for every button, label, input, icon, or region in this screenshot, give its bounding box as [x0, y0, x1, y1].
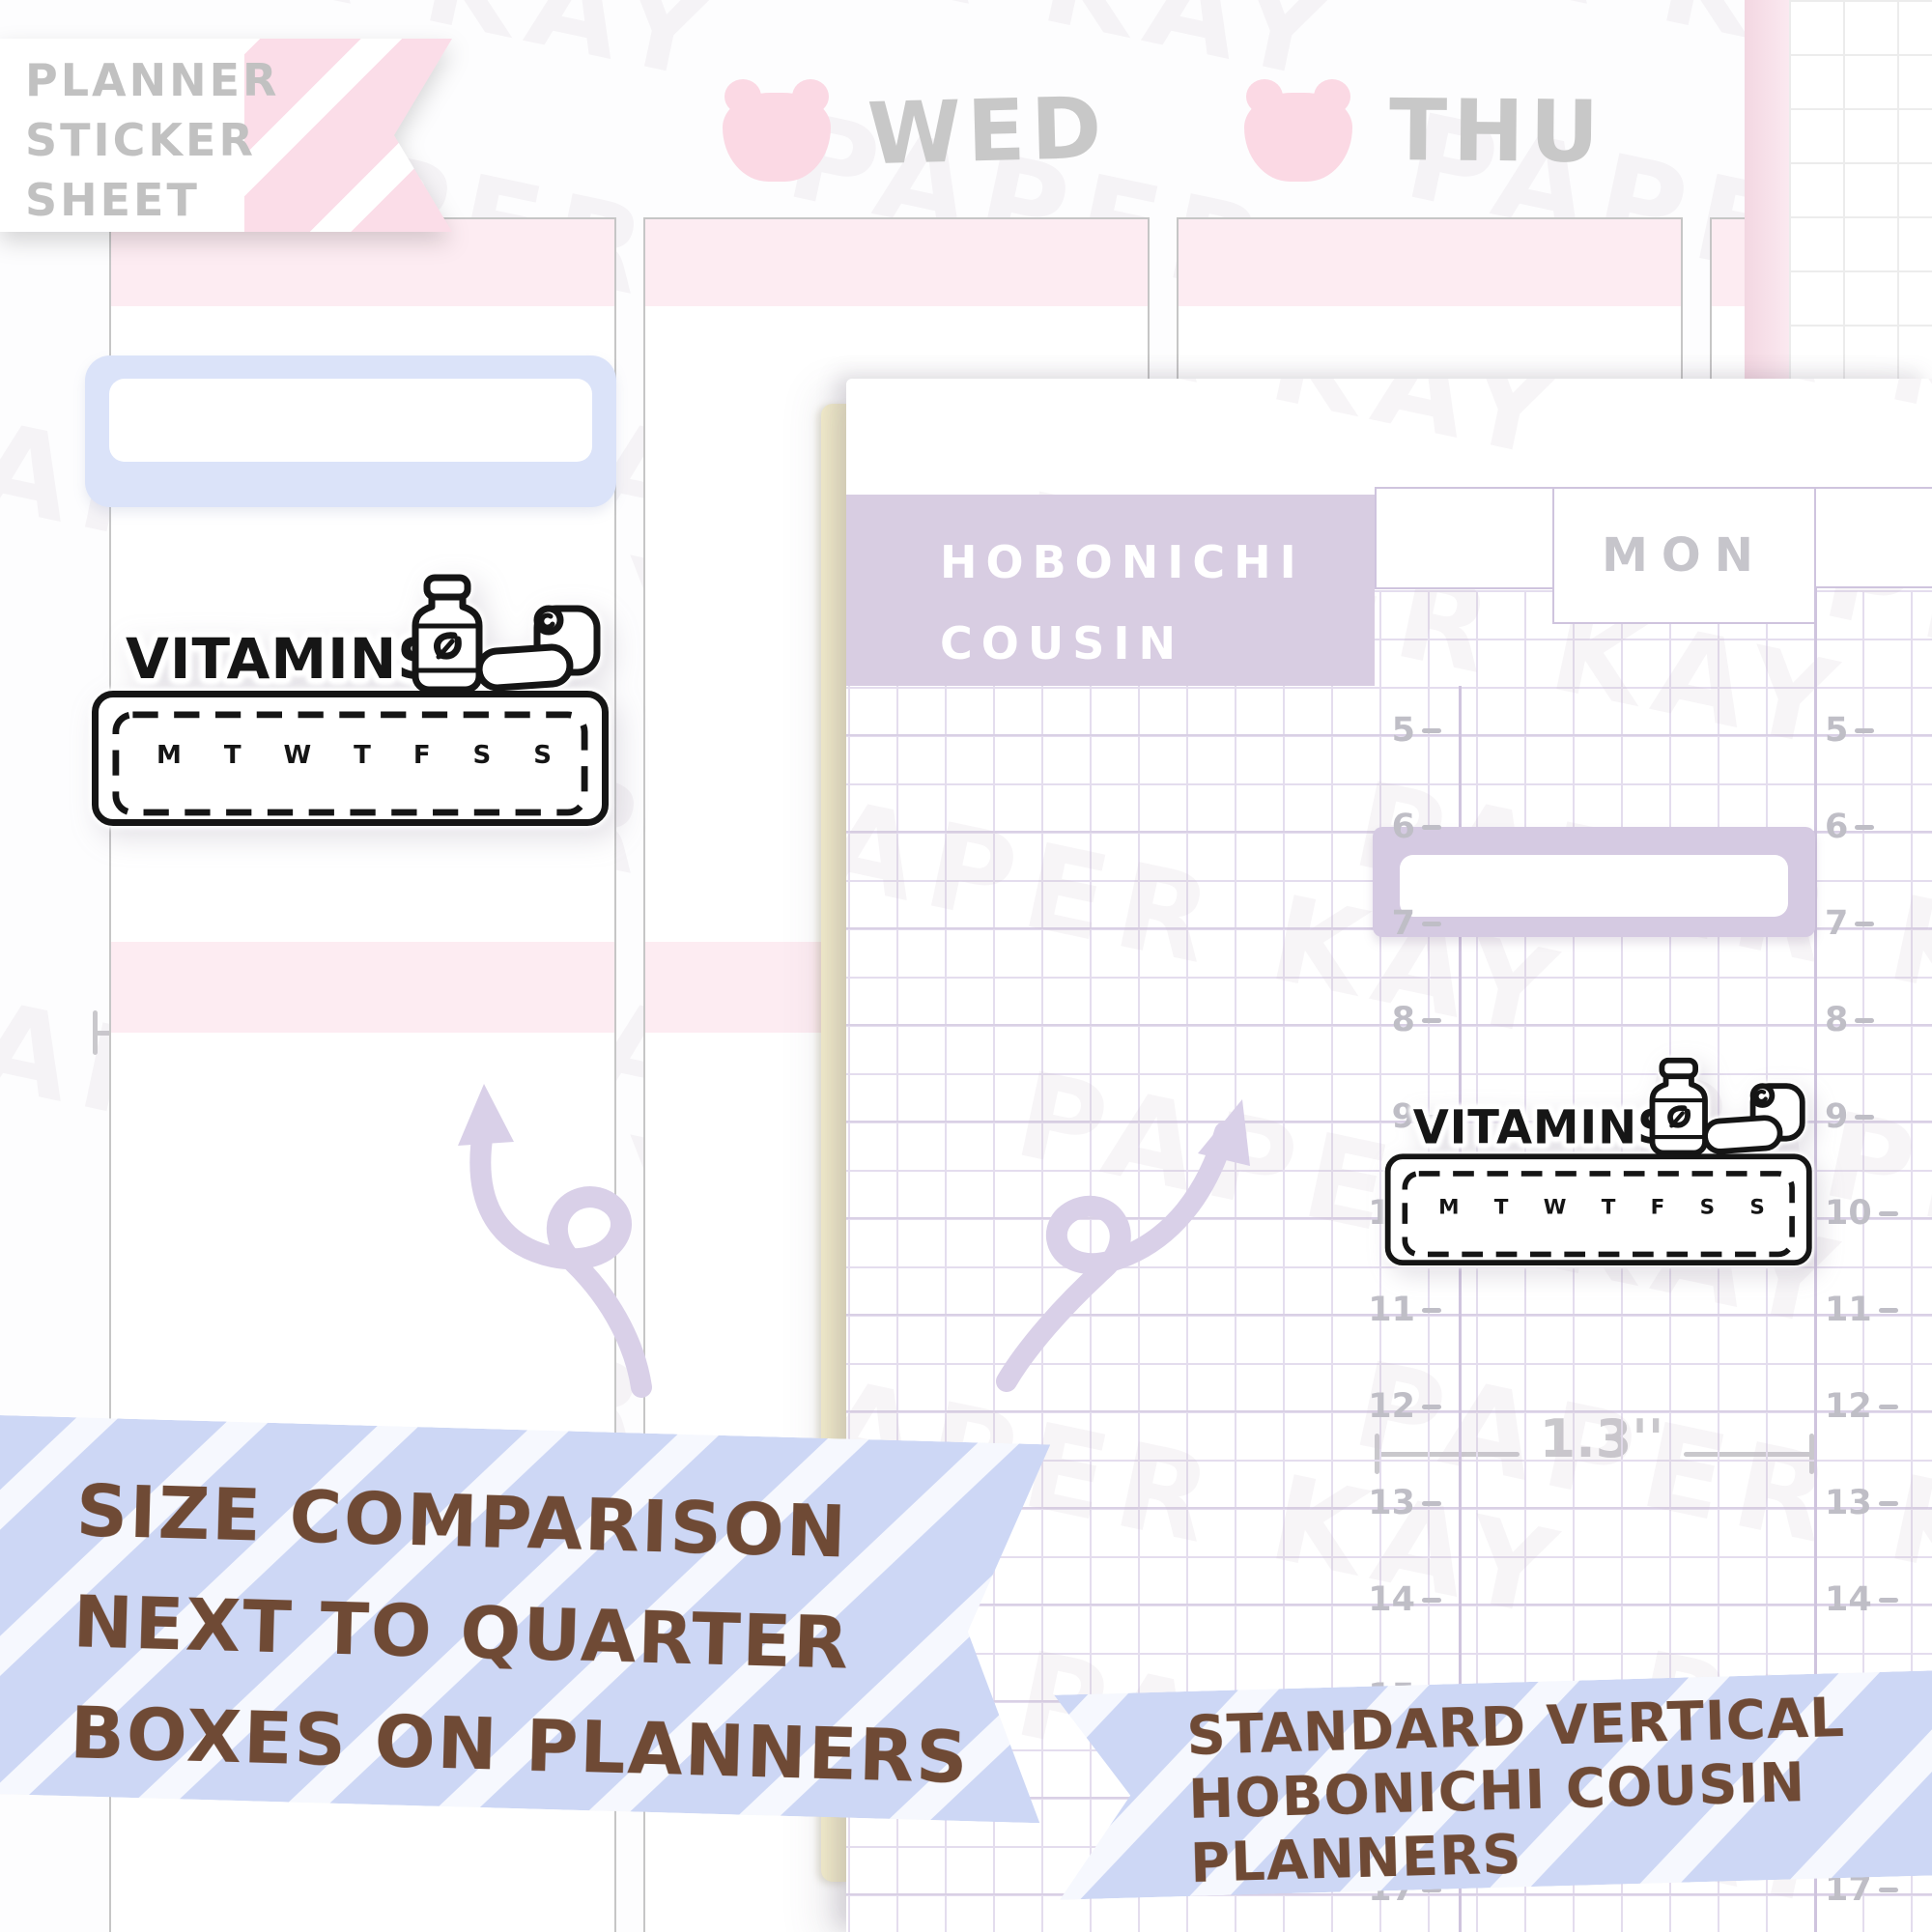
day-label-mon: MON — [1554, 489, 1814, 622]
hour-tick — [1879, 1501, 1898, 1506]
vitamins-sticker-small: VITAMINS — [1379, 1068, 1827, 1276]
background-page-corner — [1745, 0, 1932, 384]
day-letter: W — [284, 741, 312, 770]
hour-tick — [1855, 1115, 1874, 1120]
hour-label: 11 — [1366, 1291, 1441, 1329]
hour-tick — [1855, 728, 1874, 733]
hour-label: 12 — [1366, 1387, 1441, 1426]
sticker-icons — [404, 574, 614, 694]
sticker-icons — [1643, 1057, 1817, 1155]
banner-standard-vertical: STANDARD VERTICAL HOBONICHI COUSIN PLANN… — [1054, 1670, 1932, 1899]
hour-tick — [1422, 1018, 1441, 1023]
sticker-day-letters: M T W T F S S — [1438, 1159, 1765, 1255]
sticker-title: VITAMINS — [1413, 1100, 1672, 1154]
hour-tick — [1855, 922, 1874, 926]
hour-number: 8 — [1392, 1001, 1415, 1039]
hour-label: 5 — [1825, 711, 1874, 750]
sticker-day-letters: M T W T F S S — [156, 697, 552, 813]
hour-tick — [1855, 1018, 1874, 1023]
day-letter: F — [1651, 1195, 1665, 1219]
hour-label: 6 — [1366, 808, 1441, 846]
hour-label: 10 — [1825, 1194, 1898, 1233]
hour-number: 6 — [1392, 808, 1415, 846]
hour-number: 5 — [1825, 711, 1848, 750]
hour-tick — [1422, 1405, 1441, 1409]
banner-size-comparison: SIZE COMPARISON NEXT TO QUARTER BOXES ON… — [0, 1415, 1050, 1824]
hour-label: 14 — [1825, 1580, 1898, 1619]
hour-number: 7 — [1825, 904, 1848, 943]
hour-number: 5 — [1392, 711, 1415, 750]
day-letter: T — [354, 741, 371, 770]
vitamin-bottle-icon — [1652, 1061, 1705, 1153]
hour-tick — [1879, 1308, 1898, 1313]
day-letter: S — [1700, 1195, 1715, 1219]
hour-number: 14 — [1825, 1580, 1872, 1619]
hour-label: 12 — [1825, 1387, 1898, 1426]
corner-tag-banner: PLANNER STICKER SHEET — [0, 39, 452, 232]
hour-number: 12 — [1825, 1387, 1872, 1426]
hour-label: 11 — [1825, 1291, 1898, 1329]
background-page-grid — [1789, 0, 1932, 384]
hour-tick — [1422, 1501, 1441, 1506]
day-letter: T — [224, 741, 241, 770]
day-label-text: WED — [867, 77, 1109, 183]
hour-tick — [1422, 1308, 1441, 1313]
hobonichi-label-line: HOBONICHI — [940, 522, 1375, 603]
sticker-tracker-box: M T W T F S S — [1385, 1153, 1812, 1265]
corner-tag-line: SHEET — [25, 170, 279, 230]
pill-icon — [1704, 1117, 1781, 1152]
day-letter: W — [1544, 1195, 1567, 1219]
day-letter: S — [533, 741, 552, 770]
hour-label: 9 — [1825, 1097, 1874, 1136]
quarter-box-blue-inner — [109, 379, 592, 462]
hour-label: 13 — [1366, 1484, 1441, 1522]
hour-label: 14 — [1366, 1580, 1441, 1619]
day-letter: S — [1749, 1195, 1764, 1219]
hour-number: 8 — [1825, 1001, 1848, 1039]
day-letter: T — [1494, 1195, 1509, 1219]
day-column-header-strip — [645, 219, 1148, 306]
hour-number: 10 — [1825, 1194, 1872, 1233]
hour-number: 7 — [1392, 904, 1415, 943]
hour-tick — [1879, 1598, 1898, 1603]
day-letter: S — [473, 741, 492, 770]
day-header-cell — [1814, 487, 1932, 588]
day-column-header-strip — [1179, 219, 1681, 306]
hour-number: 6 — [1825, 808, 1848, 846]
corner-tag-line: PLANNER — [25, 50, 279, 110]
hour-tick — [1879, 1888, 1898, 1892]
watermark-text: PAPER KAY — [846, 379, 1579, 486]
background-page-edge — [1745, 0, 1789, 384]
hour-tick — [1422, 728, 1441, 733]
day-column-header-strip — [111, 219, 614, 306]
day-column-footer-strip — [111, 942, 614, 1033]
hour-number: 9 — [1825, 1097, 1848, 1136]
hour-label: 7 — [1825, 904, 1874, 943]
hour-number: 11 — [1368, 1291, 1415, 1329]
day-letter: T — [1602, 1195, 1616, 1219]
hour-label: 8 — [1366, 1001, 1441, 1039]
hour-tick — [1855, 825, 1874, 830]
hour-label: 13 — [1825, 1484, 1898, 1522]
hour-label: 7 — [1366, 904, 1441, 943]
hour-number: 14 — [1368, 1580, 1415, 1619]
day-header-cell-mon: MON — [1552, 487, 1816, 624]
hour-tick — [1422, 922, 1441, 926]
hour-label: 6 — [1825, 808, 1874, 846]
day-label-thu: THU — [1244, 79, 1605, 182]
vitamins-sticker-large: VITAMINS — [85, 587, 626, 838]
hour-tick — [1879, 1405, 1898, 1409]
hour-number: 11 — [1825, 1291, 1872, 1329]
hour-number: 13 — [1825, 1484, 1872, 1522]
hobonichi-cousin-label: HOBONICHI COUSIN — [846, 495, 1375, 686]
day-letter: F — [413, 741, 431, 770]
hour-label: 8 — [1825, 1001, 1874, 1039]
day-label-wed: WED — [723, 79, 1107, 182]
sticker-title: VITAMINS — [126, 626, 439, 692]
hour-tick — [1422, 825, 1441, 830]
day-letter: M — [156, 741, 182, 770]
hour-number: 13 — [1368, 1484, 1415, 1522]
hour-tick — [1879, 1211, 1898, 1216]
quarter-box-blue-highlight — [85, 355, 616, 507]
hour-tick — [1422, 1598, 1441, 1603]
corner-tag-text: PLANNER STICKER SHEET — [25, 50, 279, 230]
day-label-text: THU — [1389, 80, 1605, 182]
day-header-cell — [1375, 487, 1554, 589]
pill-icon — [478, 646, 571, 689]
watermark-text: PAPER KAY — [1344, 379, 1932, 486]
vitamin-bottle-icon — [415, 578, 479, 690]
product-image-canvas: PAPER KAYPAPER KAYPAPER KAYPAPER KAYPAPE… — [0, 0, 1932, 1932]
day-letter: M — [1438, 1195, 1459, 1219]
bear-icon — [1244, 79, 1352, 182]
bear-icon — [723, 79, 831, 182]
hobonichi-label-line: COUSIN — [940, 603, 1375, 684]
quarter-box-purple-inner — [1400, 855, 1788, 917]
sticker-tracker-box: M T W T F S S — [92, 691, 609, 826]
corner-tag-line: STICKER — [25, 110, 279, 170]
hour-label: 5 — [1366, 711, 1441, 750]
hour-number: 12 — [1368, 1387, 1415, 1426]
